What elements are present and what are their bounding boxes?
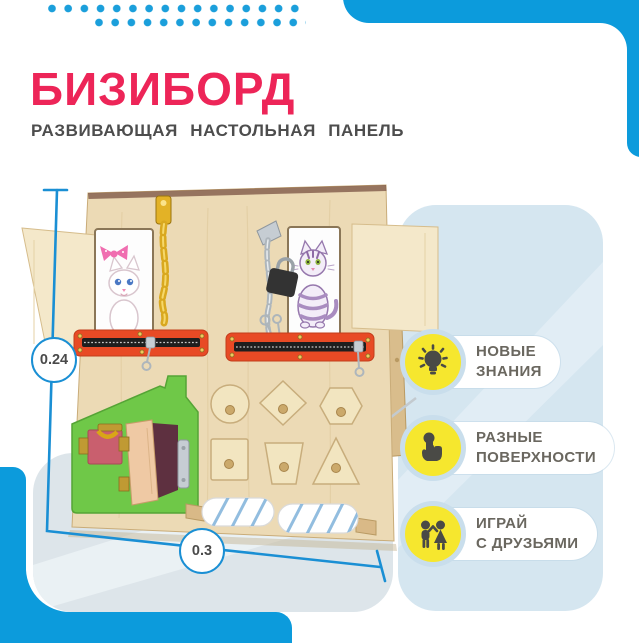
feature-line2: С ДРУЗЬЯМИ xyxy=(476,534,579,554)
feature-line1: ИГРАЙ xyxy=(476,514,579,534)
dots-pattern-row1 xyxy=(48,4,307,13)
badge-ring xyxy=(400,329,466,395)
page-subtitle: РАЗВИВАЮЩАЯ НАСТОЛЬНАЯ ПАНЕЛЬ xyxy=(31,122,404,139)
friends-icon xyxy=(415,516,451,552)
badge-ring xyxy=(400,501,466,567)
page-title: БИЗИБОРД xyxy=(30,66,404,112)
touch-icon xyxy=(415,430,451,466)
product-card: БИЗИБОРД РАЗВИВАЮЩАЯ НАСТОЛЬНАЯ ПАНЕЛЬ 0… xyxy=(0,0,639,643)
badge-circle xyxy=(405,420,461,476)
width-dimension-label: 0.3 xyxy=(179,528,225,574)
flap-right xyxy=(352,224,438,332)
header: БИЗИБОРД РАЗВИВАЮЩАЯ НАСТОЛЬНАЯ ПАНЕЛЬ xyxy=(30,66,404,139)
lightbulb-icon xyxy=(415,344,451,380)
badge-circle xyxy=(405,334,461,390)
feature-line2: ЗНАНИЯ xyxy=(476,362,542,382)
feature-line1: НОВЫЕ xyxy=(476,342,542,362)
peg-hexagon xyxy=(320,388,362,424)
dots-pattern-row2 xyxy=(95,18,306,27)
feature-line2: ПОВЕРХНОСТИ xyxy=(476,448,596,468)
badge-circle xyxy=(405,506,461,562)
peg-circle xyxy=(211,385,249,423)
badge-ring xyxy=(400,415,466,481)
wooden-door xyxy=(126,420,158,505)
height-dimension-label: 0.24 xyxy=(31,337,77,383)
feature-line1: РАЗНЫЕ xyxy=(476,428,596,448)
